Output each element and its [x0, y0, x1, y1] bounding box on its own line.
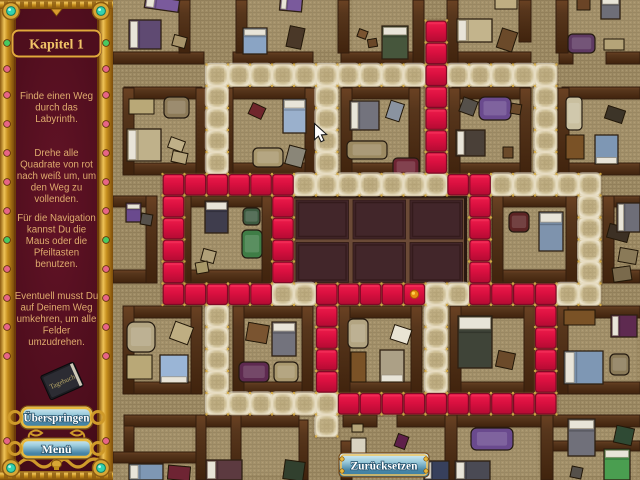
- svg-text:Für die Navigation: Für die Navigation: [17, 213, 96, 224]
- svg-text:auf Deinem Weg: auf Deinem Weg: [21, 303, 93, 314]
- svg-text:benutzen.: benutzen.: [35, 259, 78, 270]
- svg-text:Menü: Menü: [42, 442, 72, 456]
- svg-text:Pfeiltasten: Pfeiltasten: [34, 248, 79, 259]
- svg-text:Überspringen: Überspringen: [24, 412, 91, 425]
- svg-text:Felder: Felder: [43, 326, 71, 337]
- svg-text:Labyrinth.: Labyrinth.: [35, 114, 78, 125]
- svg-text:Finde einen Weg: Finde einen Weg: [20, 91, 93, 102]
- svg-text:den Weg zu: den Weg zu: [31, 183, 83, 194]
- svg-text:vollenden.: vollenden.: [34, 194, 78, 205]
- svg-text:Zurücksetzen: Zurücksetzen: [350, 461, 418, 473]
- svg-text:Eventuell musst Du: Eventuell musst Du: [15, 291, 98, 302]
- svg-text:Quadrate von rot: Quadrate von rot: [20, 160, 93, 171]
- svg-text:umzudrehen.: umzudrehen.: [28, 337, 85, 348]
- svg-text:durch das: durch das: [35, 103, 78, 114]
- svg-text:Maus oder die: Maus oder die: [26, 236, 87, 247]
- svg-text:umkehren, um alle: umkehren, um alle: [17, 314, 97, 325]
- svg-text:Kapitel 1: Kapitel 1: [29, 38, 84, 53]
- svg-text:kannst Du die: kannst Du die: [27, 225, 86, 236]
- svg-text:nach weiß um, um: nach weiß um, um: [17, 171, 96, 182]
- svg-text:Drehe alle: Drehe alle: [34, 148, 78, 159]
